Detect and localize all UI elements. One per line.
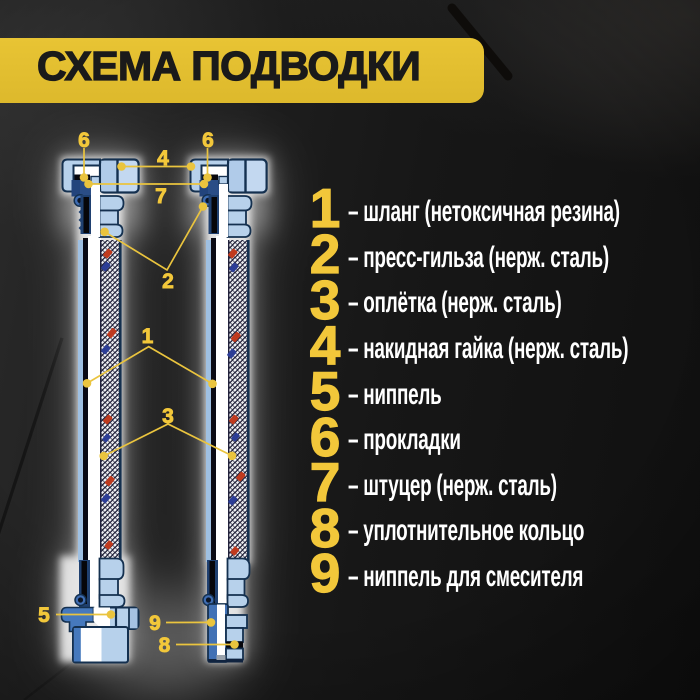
svg-text:6: 6	[78, 129, 90, 152]
svg-text:1: 1	[142, 325, 154, 348]
svg-text:3: 3	[162, 405, 174, 428]
svg-text:6: 6	[202, 129, 214, 152]
svg-text:8: 8	[159, 634, 171, 657]
svg-text:4: 4	[157, 147, 169, 170]
svg-text:2: 2	[162, 270, 174, 293]
svg-text:7: 7	[155, 185, 167, 208]
svg-text:5: 5	[38, 604, 50, 627]
svg-text:9: 9	[149, 612, 161, 635]
